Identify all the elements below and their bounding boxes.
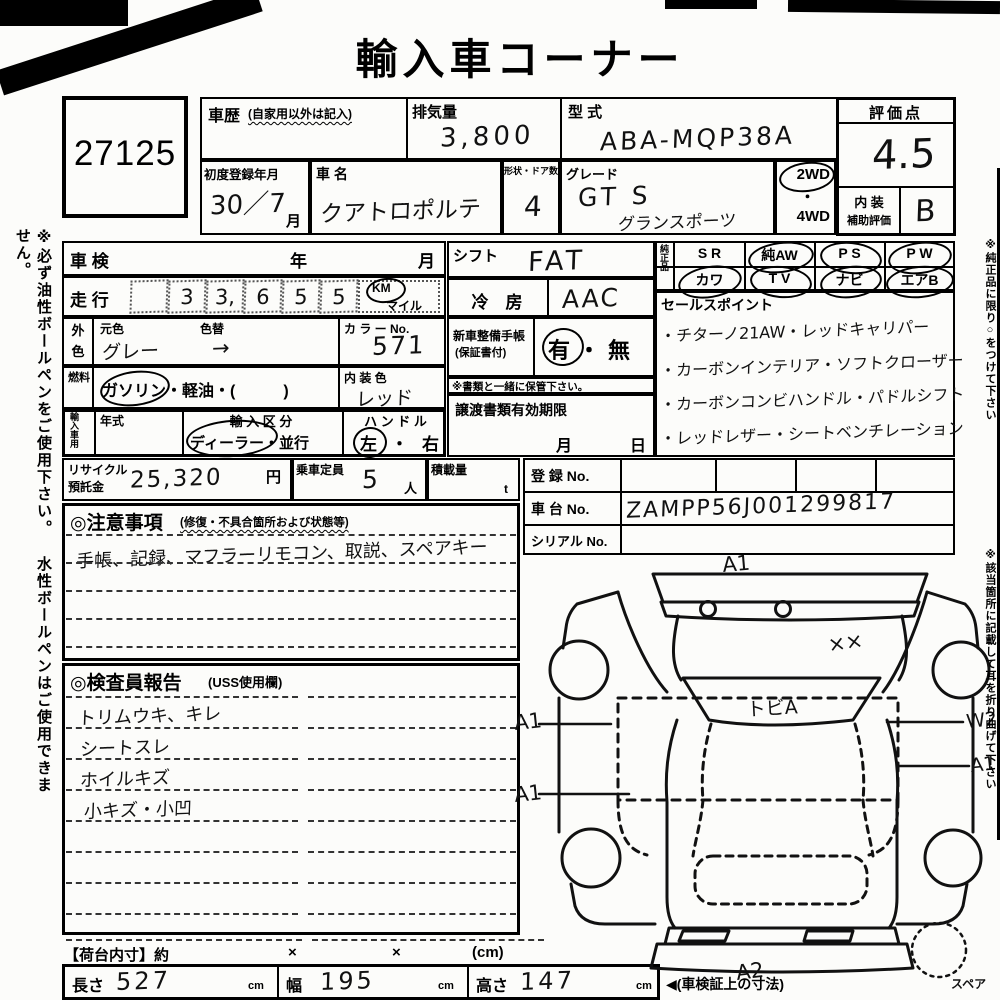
rear-right-wheel bbox=[925, 830, 981, 886]
fuel-side-divider bbox=[92, 366, 94, 409]
inspector-rule-0b bbox=[308, 696, 516, 698]
cautions-line-rule-1 bbox=[66, 562, 516, 564]
auction-sheet: 輸入車コーナー 27125 車歴 (自家用以外は記入) 排気量 3,800 型 … bbox=[0, 0, 1000, 1000]
transfer-label: 譲渡書類有効期限 bbox=[455, 400, 567, 420]
mileage-digit-5: 5 bbox=[319, 279, 358, 313]
orig-color-label: 元色 bbox=[100, 320, 124, 337]
inspector-rule-5a bbox=[66, 851, 298, 853]
import-side-label: 輸入車用 bbox=[68, 412, 81, 456]
rear-arch-right-dashed bbox=[869, 800, 898, 855]
reg-no-divider-1 bbox=[715, 458, 717, 491]
length-label: 長さ bbox=[72, 972, 104, 996]
model-code-label: 型 式 bbox=[568, 101, 602, 122]
shift-value: FAT bbox=[527, 245, 586, 278]
mileage-label: 走 行 bbox=[70, 286, 109, 311]
left-fold-line bbox=[618, 592, 667, 692]
vehicle-diagram: A1 ×× トビA A1 A1 W2 A1 A2 スペア bbox=[515, 552, 1000, 992]
color-change-label: 色替 bbox=[200, 320, 224, 337]
body-left-side bbox=[666, 720, 677, 928]
interior-score-label2: 補助評価 bbox=[840, 212, 898, 228]
score-divider bbox=[836, 186, 956, 188]
inspector-line-0: トリムウキ、キレ bbox=[78, 699, 222, 730]
doors-value: 4 bbox=[523, 190, 542, 224]
inspector-rule-7a bbox=[66, 913, 298, 915]
scan-artifact-topleft-bar bbox=[0, 0, 128, 26]
cautions-line-rule-3 bbox=[66, 618, 516, 620]
division-divider bbox=[182, 409, 184, 457]
cautions-line-rule-4 bbox=[66, 646, 516, 648]
inspector-rule-3a bbox=[66, 789, 298, 791]
car-name-value: クアトロポルテ bbox=[319, 189, 481, 229]
rear-left-wheel bbox=[562, 829, 620, 887]
inspector-rule-1b bbox=[308, 727, 516, 729]
shaken-label: 車 検 bbox=[70, 247, 109, 272]
shaken-year-label: 年 bbox=[290, 247, 307, 272]
width-unit: cm bbox=[438, 980, 454, 992]
load-unit: t bbox=[504, 482, 508, 496]
rear-slot-left bbox=[679, 931, 729, 941]
history-sublabel: (自家用以外は記入) bbox=[248, 105, 352, 122]
first-reg-value: 30／7 bbox=[209, 183, 286, 223]
spare-tire-dashed bbox=[912, 923, 966, 977]
ext-color-side-label: 外色 bbox=[66, 320, 90, 362]
chassis-no-label: 車 台 No. bbox=[531, 499, 589, 519]
capacity-unit: 人 bbox=[404, 478, 417, 497]
cargo-unit: (cm) bbox=[472, 944, 504, 961]
right-margin-note-1: ※純正品に限り○をつけて下さい bbox=[982, 238, 998, 538]
dims-divider-1 bbox=[277, 964, 279, 1000]
inspector-rule-1a bbox=[66, 727, 298, 729]
service-book-divider bbox=[533, 317, 535, 377]
damage-mark-left-1: A1 bbox=[515, 708, 543, 735]
hood-left-edge bbox=[673, 616, 681, 680]
reg-no-divider-3 bbox=[875, 458, 877, 491]
length-value: 527 bbox=[116, 966, 172, 996]
cautions-line-rule-2 bbox=[66, 590, 516, 592]
score-value: 4.5 bbox=[871, 131, 936, 179]
genuine-sr-label: S R bbox=[675, 245, 744, 261]
recycle-unit: 円 bbox=[266, 466, 281, 487]
inspector-rule-4a bbox=[66, 820, 298, 822]
bpillar-right-dashed bbox=[855, 724, 864, 800]
cautions-header-sub: (修復・不具合箇所および状態等) bbox=[180, 514, 349, 530]
cowl-circle-right bbox=[776, 602, 791, 617]
left-margin-note: ※必ず油性ボールペンをご使用下さい。 水性ボールペンはご使用できません。 bbox=[12, 228, 54, 803]
ac-label: 冷 房 bbox=[447, 288, 547, 313]
mileage-digit-4: 5 bbox=[281, 279, 320, 313]
length-unit: cm bbox=[248, 980, 264, 992]
recycle-value: 25,320 bbox=[130, 464, 223, 493]
rear-bumper-lip bbox=[651, 944, 913, 972]
cowl-circle-left bbox=[701, 602, 716, 617]
interior-color-value: レッド bbox=[356, 383, 414, 412]
page-title: 輸入車コーナー bbox=[290, 26, 750, 87]
color-change-value: → bbox=[212, 336, 230, 361]
mileage-digit-2: 3, bbox=[205, 279, 244, 313]
inspector-rule-4b bbox=[308, 820, 516, 822]
cargo-label: 【荷台内寸】約 bbox=[64, 944, 169, 965]
height-label: 高さ bbox=[476, 972, 508, 996]
grade-value2: グランスポーツ bbox=[618, 206, 737, 235]
colorno-divider bbox=[338, 317, 340, 366]
interior-score-label1: 内 装 bbox=[840, 192, 898, 211]
car-name-label: 車 名 bbox=[316, 164, 348, 184]
front-left-wheel bbox=[550, 641, 608, 699]
damage-mark-windshield: トビA bbox=[746, 696, 798, 721]
transfer-day: 日 bbox=[630, 432, 646, 456]
width-label: 幅 bbox=[286, 972, 302, 996]
inspector-rule-0a bbox=[66, 696, 298, 698]
handle-label: ハ ン ド ル bbox=[348, 411, 443, 430]
damage-mark-upper-right: ×× bbox=[826, 628, 864, 657]
damage-mark-front: A1 bbox=[721, 552, 751, 577]
reg-no-label: 登 録 No. bbox=[531, 466, 589, 486]
rear-arch-left-dashed bbox=[618, 800, 647, 855]
bottom-rule-a bbox=[66, 939, 302, 941]
damage-mark-left-2: A1 bbox=[515, 780, 543, 807]
import-year-label: 年式 bbox=[100, 412, 124, 429]
fuel-side-label: 燃料 bbox=[68, 369, 90, 387]
left-panel-bottom bbox=[571, 884, 655, 924]
left-fender-edge bbox=[563, 592, 618, 648]
inspector-rule-6b bbox=[308, 882, 516, 884]
scan-artifact-top-bar2 bbox=[788, 0, 1000, 14]
scan-artifact-top-bar1 bbox=[665, 0, 757, 9]
drive-4wd: 4WD bbox=[782, 208, 830, 225]
inspector-header: ◎検査員報告 bbox=[70, 668, 182, 695]
inspector-rule-3b bbox=[308, 789, 516, 791]
cautions-header: ◎注意事項 bbox=[70, 508, 163, 535]
mileage-digit-0 bbox=[129, 279, 168, 313]
shaken-month-label: 月 bbox=[418, 247, 435, 272]
cargo-x1: × bbox=[288, 944, 297, 961]
bottom-rule-b bbox=[312, 939, 544, 941]
serial-no-label: シリアル No. bbox=[531, 531, 607, 550]
capacity-label: 乗車定員 bbox=[296, 461, 344, 478]
orig-color-value: グレー bbox=[102, 336, 160, 365]
rear-window-dashed bbox=[695, 856, 867, 904]
score-label: 評価点 bbox=[836, 102, 956, 123]
mileage-digit-1: 3 bbox=[167, 279, 206, 313]
ac-divider bbox=[547, 278, 549, 317]
hood-right-edge bbox=[899, 616, 907, 680]
shift-label: シフト bbox=[453, 245, 498, 266]
rear-right-dashed bbox=[863, 800, 873, 856]
mileage-digit-3: 6 bbox=[243, 279, 282, 313]
doors-label: 形状・ドア数 bbox=[503, 164, 559, 177]
inspector-rule-2a bbox=[66, 758, 298, 760]
rear-slot-right bbox=[804, 931, 853, 941]
registration-row-divider-2 bbox=[523, 524, 955, 526]
width-value: 195 bbox=[320, 966, 376, 996]
body-right-side bbox=[887, 720, 898, 928]
score-divider-v bbox=[899, 186, 901, 236]
service-book-label1: 新車整備手帳 bbox=[453, 327, 525, 344]
inspector-rule-2b bbox=[308, 758, 516, 760]
transfer-month: 月 bbox=[556, 432, 572, 456]
inspector-rule-7b bbox=[308, 913, 516, 915]
first-reg-month-suffix: 月 bbox=[286, 210, 301, 231]
import-side-divider bbox=[94, 409, 96, 457]
reg-no-divider-2 bbox=[795, 458, 797, 491]
interior-color-divider bbox=[338, 366, 340, 409]
inspector-header-sub: (USS使用欄) bbox=[208, 672, 282, 691]
colorno-value: 571 bbox=[372, 330, 427, 361]
right-panel-bottom bbox=[897, 884, 967, 924]
grade-label: グレード bbox=[566, 164, 618, 183]
ext-color-side-divider bbox=[92, 317, 94, 366]
registration-label-divider bbox=[620, 458, 622, 555]
rear-left-dashed bbox=[693, 800, 703, 856]
shaken-box bbox=[62, 241, 446, 276]
damage-mark-rear: A2 bbox=[735, 958, 765, 985]
ac-value: AAC bbox=[562, 283, 621, 314]
bpillar-left-dashed bbox=[702, 724, 711, 800]
cargo-x2: × bbox=[392, 944, 401, 961]
recycle-label2: 預託金 bbox=[68, 478, 104, 495]
dims-divider-2 bbox=[467, 964, 469, 1000]
right-fender-edge bbox=[927, 592, 978, 648]
displacement-label: 排気量 bbox=[412, 101, 457, 122]
recycle-label1: リサイクル bbox=[68, 461, 127, 478]
right-margin-note-2: ※該当箇所に記載して耳を折り曲げて下さい bbox=[982, 548, 998, 858]
front-right-wheel bbox=[933, 642, 989, 698]
inspector-rule-6a bbox=[66, 882, 298, 884]
sales-points-label: セールスポイント bbox=[661, 295, 773, 315]
inspector-rule-5b bbox=[308, 851, 516, 853]
service-book-note: ※書類と一緒に保管下さい。 bbox=[452, 379, 588, 394]
grade-value: GT S bbox=[578, 181, 653, 213]
service-book-label2: (保証書付) bbox=[455, 344, 506, 360]
spare-label: スペア bbox=[951, 977, 986, 991]
displacement-value: 3,800 bbox=[440, 120, 535, 153]
front-bumper bbox=[653, 574, 927, 602]
history-label: 車歴 bbox=[208, 102, 240, 126]
interior-score-value: B bbox=[914, 194, 936, 230]
load-label: 積載量 bbox=[431, 461, 467, 478]
lot-number: 27125 bbox=[62, 134, 188, 174]
capacity-value: 5 bbox=[361, 465, 378, 495]
handle-divider bbox=[342, 409, 344, 457]
first-reg-label: 初度登録年月 bbox=[204, 164, 279, 183]
